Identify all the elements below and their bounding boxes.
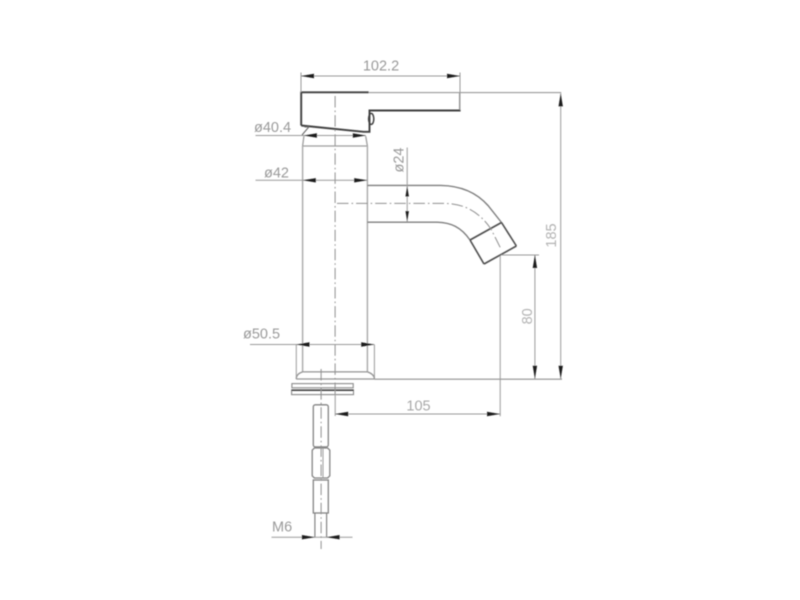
svg-text:ø42: ø42 bbox=[264, 166, 289, 182]
svg-text:105: 105 bbox=[406, 399, 430, 415]
svg-text:102.2: 102.2 bbox=[363, 59, 399, 75]
svg-text:80: 80 bbox=[520, 308, 536, 324]
svg-text:ø24: ø24 bbox=[392, 148, 408, 173]
svg-text:ø50.5: ø50.5 bbox=[243, 327, 280, 343]
svg-text:185: 185 bbox=[544, 223, 560, 247]
svg-text:ø40.4: ø40.4 bbox=[254, 120, 291, 136]
svg-text:M6: M6 bbox=[272, 520, 292, 536]
